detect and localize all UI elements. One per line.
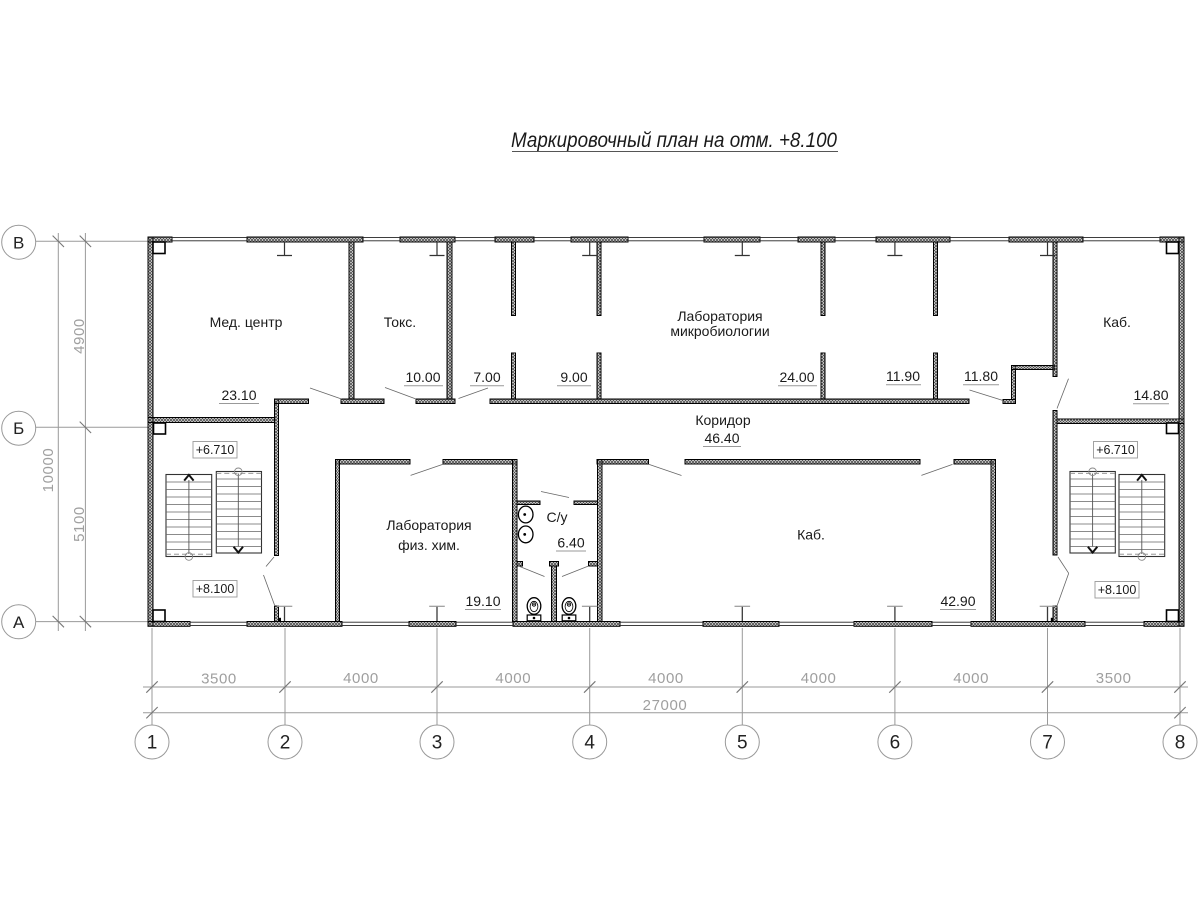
svg-text:14.80: 14.80 bbox=[1133, 387, 1168, 403]
svg-text:11.90: 11.90 bbox=[886, 368, 920, 384]
svg-text:7: 7 bbox=[1042, 733, 1053, 754]
svg-text:10000: 10000 bbox=[40, 448, 57, 493]
svg-text:4000: 4000 bbox=[648, 670, 684, 687]
svg-text:19.10: 19.10 bbox=[465, 593, 500, 609]
svg-text:3500: 3500 bbox=[1096, 670, 1132, 687]
svg-text:+8.100: +8.100 bbox=[1098, 583, 1137, 597]
svg-text:4000: 4000 bbox=[343, 670, 379, 687]
svg-text:Лаборатория: Лаборатория bbox=[386, 517, 471, 533]
svg-text:9.00: 9.00 bbox=[560, 369, 587, 385]
svg-text:4000: 4000 bbox=[801, 670, 837, 687]
svg-text:Коридор: Коридор bbox=[695, 412, 751, 428]
svg-text:Маркировочный план на отм. +8.: Маркировочный план на отм. +8.100 bbox=[511, 129, 837, 152]
svg-text:6: 6 bbox=[890, 733, 901, 754]
svg-text:+8.100: +8.100 bbox=[196, 582, 235, 596]
svg-text:7.00: 7.00 bbox=[473, 369, 500, 385]
svg-text:4000: 4000 bbox=[953, 670, 989, 687]
svg-text:В: В bbox=[13, 233, 24, 252]
svg-text:Каб.: Каб. bbox=[1103, 314, 1131, 330]
svg-text:Каб.: Каб. bbox=[797, 527, 825, 543]
svg-text:6.40: 6.40 bbox=[557, 535, 584, 551]
svg-text:42.90: 42.90 bbox=[940, 593, 975, 609]
svg-text:27000: 27000 bbox=[643, 697, 688, 714]
svg-text:+6.710: +6.710 bbox=[1096, 443, 1135, 457]
svg-text:5: 5 bbox=[737, 733, 748, 754]
svg-text:Лаборатория: Лаборатория bbox=[677, 308, 762, 324]
svg-text:3: 3 bbox=[432, 733, 443, 754]
svg-text:Б: Б bbox=[13, 419, 24, 438]
svg-text:Токс.: Токс. bbox=[384, 314, 416, 330]
svg-text:микробиологии: микробиологии bbox=[670, 323, 769, 339]
svg-text:5100: 5100 bbox=[71, 506, 88, 542]
svg-text:А: А bbox=[13, 613, 25, 632]
svg-text:1: 1 bbox=[147, 733, 158, 754]
svg-text:2: 2 bbox=[280, 733, 291, 754]
svg-text:3500: 3500 bbox=[201, 671, 237, 688]
svg-text:4000: 4000 bbox=[495, 670, 531, 687]
svg-text:10.00: 10.00 bbox=[405, 369, 440, 385]
svg-text:8: 8 bbox=[1175, 733, 1186, 754]
svg-text:4: 4 bbox=[584, 733, 595, 754]
svg-text:24.00: 24.00 bbox=[779, 369, 814, 385]
svg-text:46.40: 46.40 bbox=[704, 430, 739, 446]
svg-text:Мед. центр: Мед. центр bbox=[210, 314, 283, 330]
svg-text:11.80: 11.80 bbox=[964, 368, 998, 384]
svg-text:С/у: С/у bbox=[547, 509, 568, 525]
svg-text:4900: 4900 bbox=[71, 318, 88, 354]
svg-text:+6.710: +6.710 bbox=[196, 443, 235, 457]
svg-text:23.10: 23.10 bbox=[221, 387, 256, 403]
svg-text:физ. хим.: физ. хим. bbox=[398, 537, 460, 553]
